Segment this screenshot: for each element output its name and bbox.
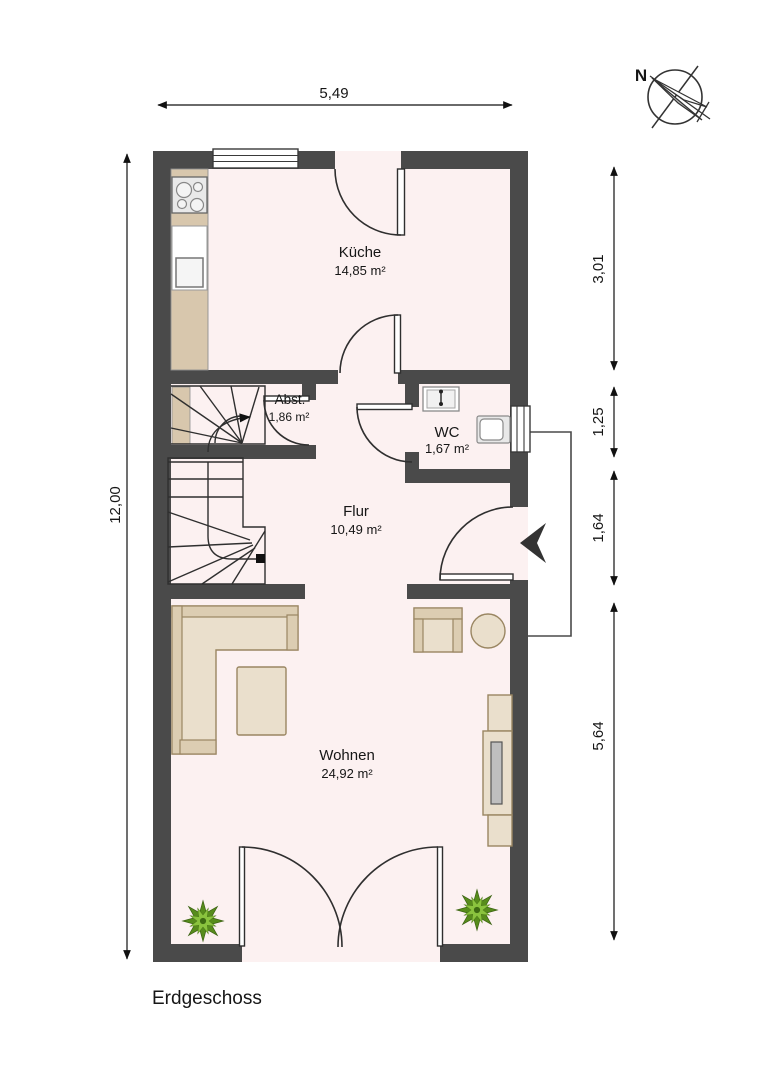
- room-area-wohnen: 24,92 m²: [321, 766, 373, 781]
- dim-right-label-3: 1,64: [590, 513, 607, 542]
- compass-icon: N: [635, 66, 710, 128]
- dim-top-label: 5,49: [319, 85, 348, 102]
- floor-title: Erdgeschoss: [152, 988, 262, 1009]
- wc-sink-icon: [423, 387, 459, 411]
- room-label-abst: Abst.: [275, 392, 306, 407]
- tv-icon: [491, 742, 502, 804]
- floor-plan-svg: N 5,49 12,00 3,01 1,25 1,64 5,64 Küche 1…: [0, 0, 764, 1080]
- dim-right-label-1: 3,01: [590, 254, 607, 283]
- kitchen-sink-icon: [176, 258, 203, 287]
- kitchen-window: [213, 149, 298, 168]
- room-label-kueche: Küche: [339, 244, 382, 261]
- compass-north-label: N: [635, 66, 647, 85]
- floor-fill: [171, 169, 510, 944]
- dim-right-label-4: 5,64: [590, 721, 607, 750]
- terrace-door-opening: [242, 944, 440, 962]
- room-area-wc: 1,67 m²: [425, 441, 470, 456]
- top-door-opening: [335, 151, 401, 169]
- toilet-icon: [477, 416, 510, 443]
- dim-right-label-2: 1,25: [590, 407, 607, 436]
- armchair: [414, 608, 462, 652]
- room-area-kueche: 14,85 m²: [334, 263, 386, 278]
- plant-icon: [183, 901, 224, 942]
- room-label-wc: WC: [435, 424, 460, 441]
- dim-left-label: 12,00: [107, 486, 124, 524]
- kitchen-counter: [171, 169, 208, 370]
- room-label-wohnen: Wohnen: [319, 747, 375, 764]
- room-label-flur: Flur: [343, 503, 369, 520]
- side-table: [471, 614, 505, 648]
- coffee-table: [237, 667, 286, 735]
- plant-icon: [457, 890, 498, 931]
- room-area-abst: 1,86 m²: [269, 410, 310, 424]
- wc-window: [511, 406, 530, 452]
- stove-icon: [172, 177, 207, 213]
- tv-board: [483, 695, 512, 846]
- room-area-flur: 10,49 m²: [330, 522, 382, 537]
